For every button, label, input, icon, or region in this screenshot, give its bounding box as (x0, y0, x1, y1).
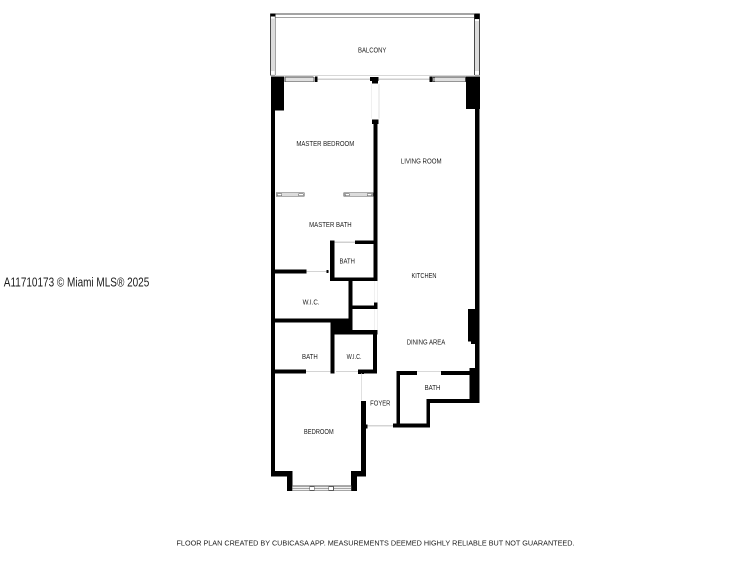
svg-text:W.I.C.: W.I.C. (347, 352, 362, 361)
svg-text:BATH: BATH (340, 257, 355, 266)
svg-text:W.I.C.: W.I.C. (303, 297, 320, 306)
svg-text:BATH: BATH (302, 352, 318, 361)
svg-text:KITCHEN: KITCHEN (412, 271, 437, 280)
svg-text:A11710173 © Miami MLS® 2025: A11710173 © Miami MLS® 2025 (4, 276, 150, 290)
svg-text:MASTER BEDROOM: MASTER BEDROOM (296, 139, 354, 148)
svg-text:BALCONY: BALCONY (358, 45, 387, 54)
svg-text:FOYER: FOYER (370, 398, 390, 407)
svg-text:BEDROOM: BEDROOM (304, 427, 334, 436)
svg-text:BATH: BATH (425, 383, 441, 392)
svg-text:MASTER BATH: MASTER BATH (309, 220, 352, 229)
svg-text:LIVING ROOM: LIVING ROOM (401, 156, 442, 165)
svg-text:FLOOR PLAN CREATED BY CUBICASA: FLOOR PLAN CREATED BY CUBICASA APP. MEAS… (177, 539, 575, 548)
svg-text:DINING AREA: DINING AREA (407, 338, 446, 347)
